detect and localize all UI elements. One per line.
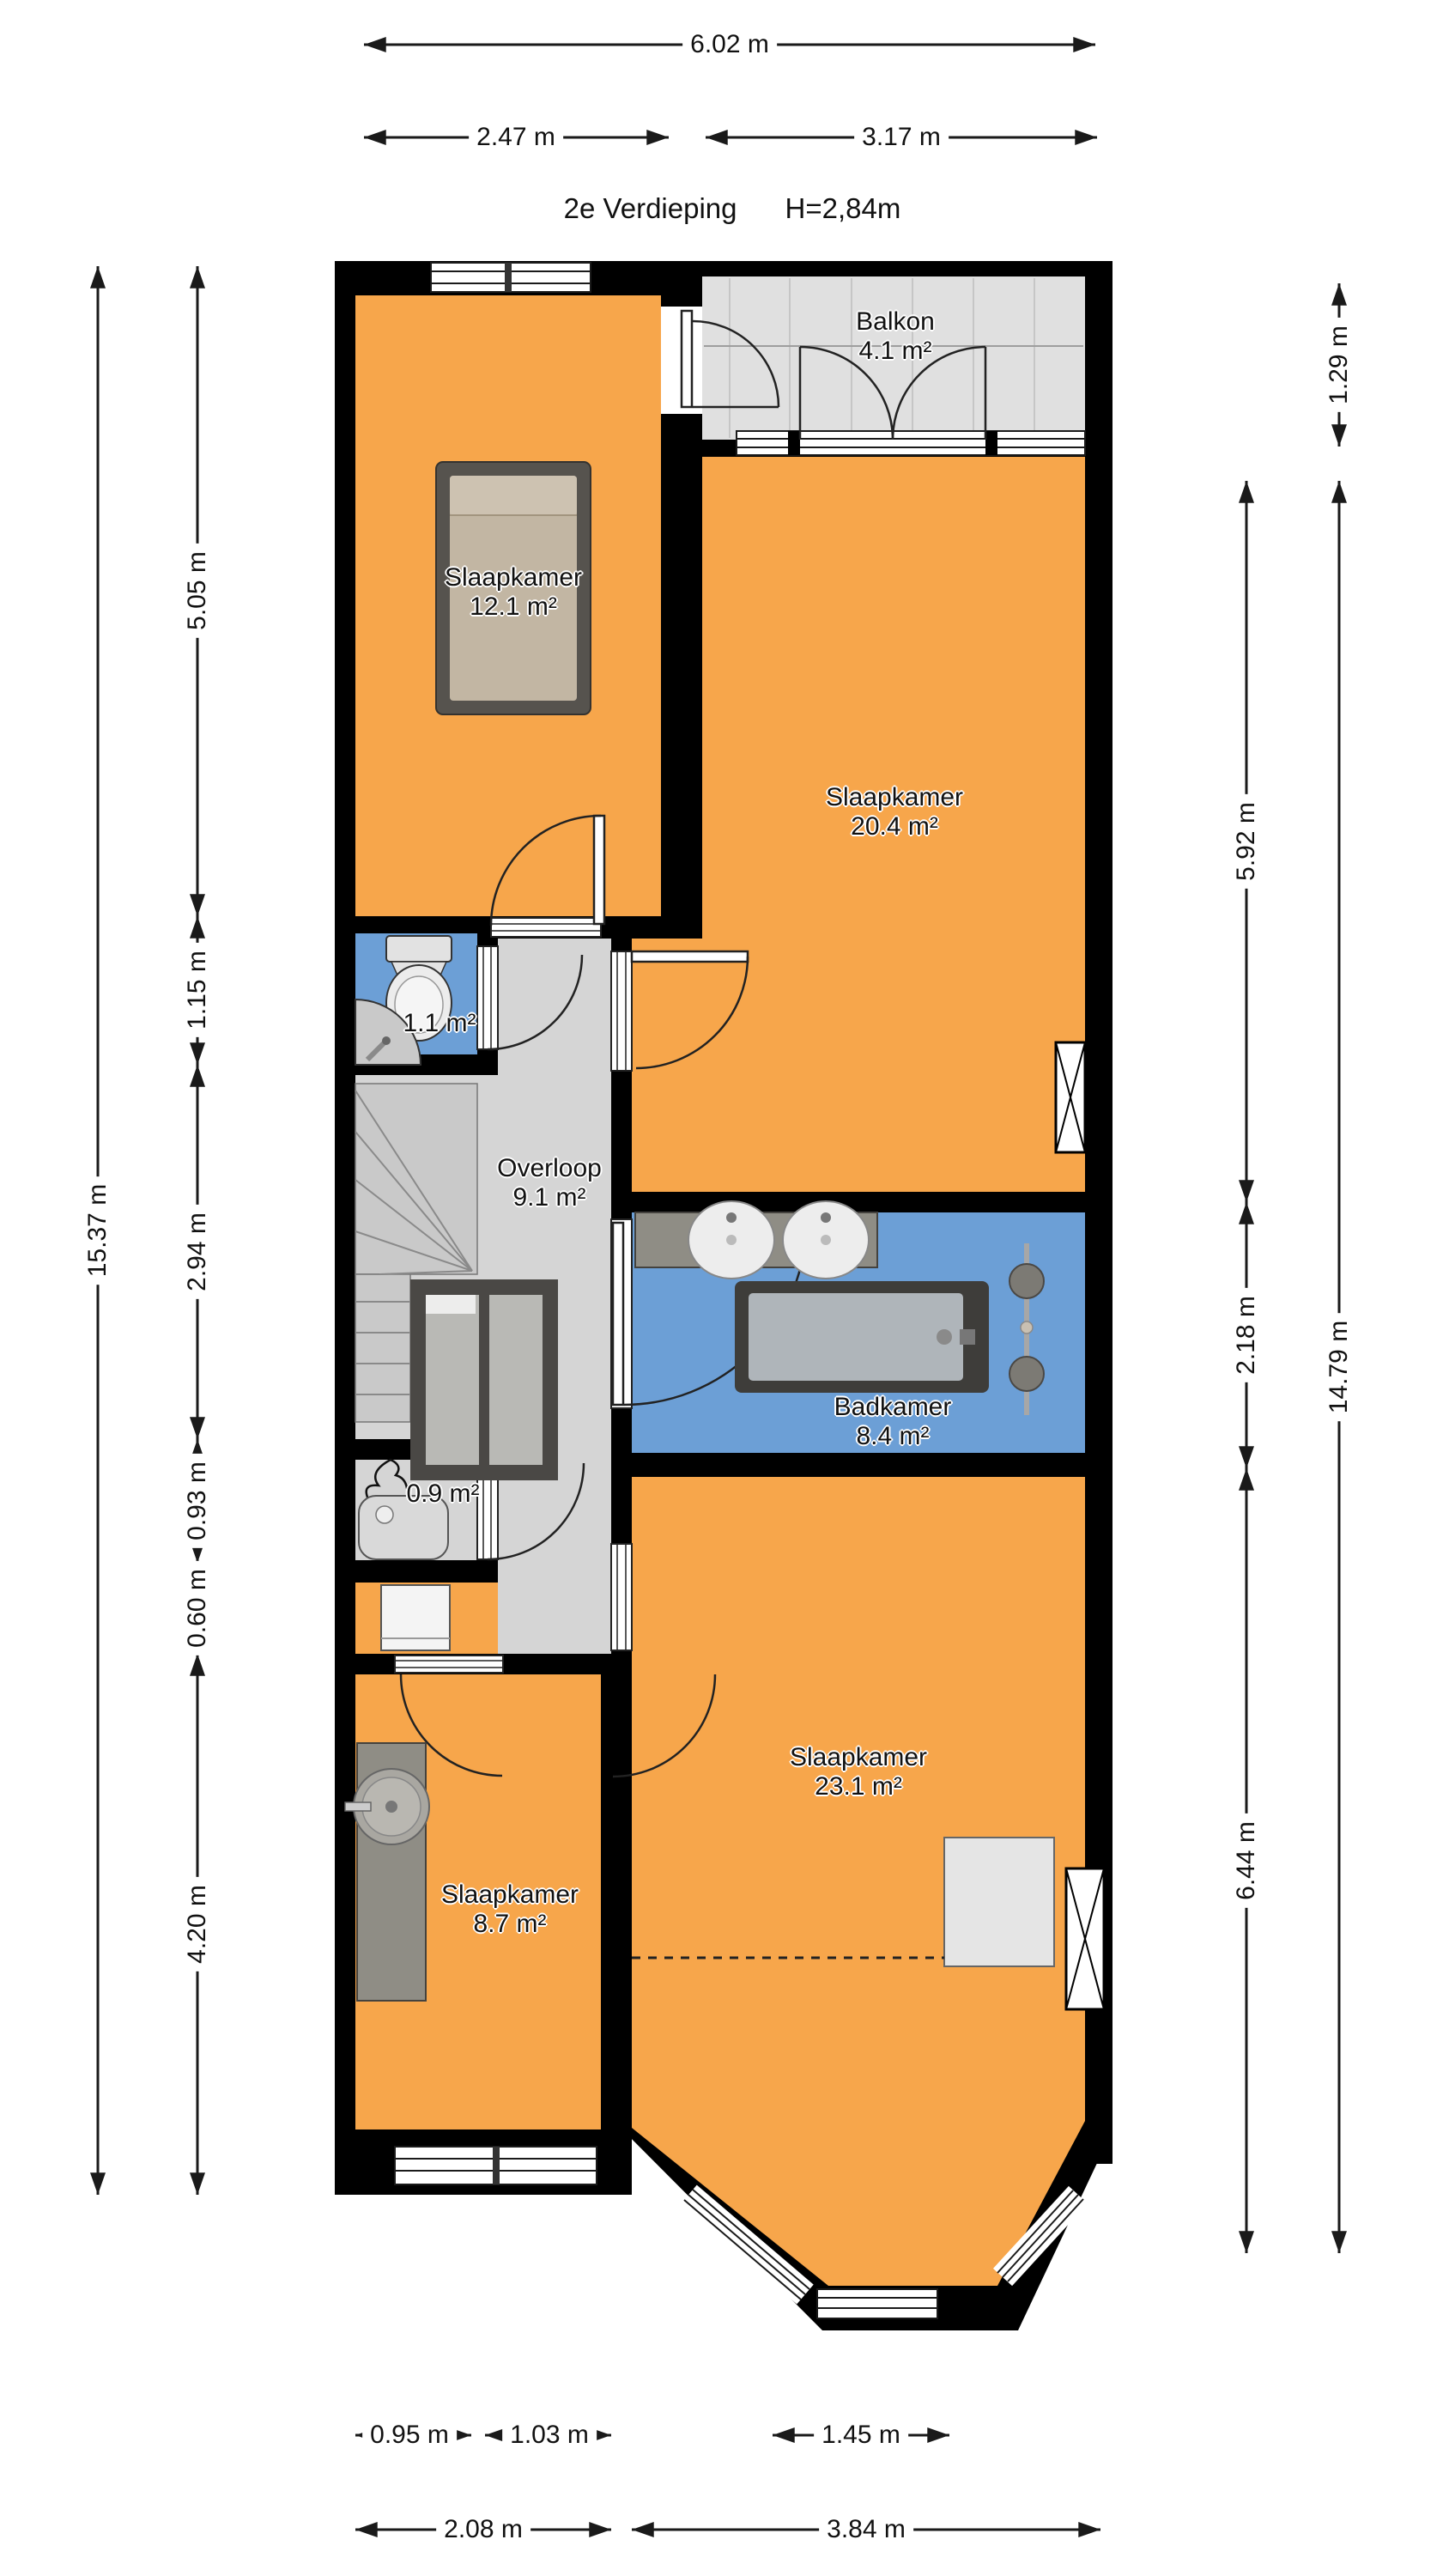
dim-right-3: 6.44 m (1232, 1814, 1261, 1908)
dim-bottom-1: 0.95 m (362, 2421, 457, 2450)
dim-top-left: 2.47 m (469, 123, 563, 152)
window-slaapkamer-klein-bottom (395, 2147, 597, 2184)
dim-left-3: 2.94 m (183, 1205, 212, 1299)
floorplan-page: 2e Verdieping H=2,84m 6.02 m 2.47 m 3.17… (0, 0, 1449, 2576)
room-label-badkamer: Badkamer 8.4 m² (834, 1393, 952, 1451)
room-label-slaapkamer-achter: Slaapkamer 23.1 m² (790, 1743, 927, 1801)
dim-right-balkon: 1.29 m (1325, 318, 1354, 412)
room-label-slaapkamer-klein: Slaapkamer 8.7 m² (441, 1880, 579, 1939)
room-label-slaapkamer-midden: Slaapkamer 20.4 m² (826, 783, 963, 841)
dim-left-4: 0.93 m (183, 1454, 212, 1548)
dim-bottom-total-left: 2.08 m (436, 2515, 530, 2544)
window-bay-bottom (817, 2289, 937, 2318)
dim-left-5: 0.60 m (183, 1561, 212, 1656)
room-label-balkon: Balkon 4.1 m² (856, 307, 935, 366)
dim-top-right: 3.17 m (854, 123, 949, 152)
dim-bottom-2: 1.03 m (502, 2421, 597, 2450)
bathtub (735, 1281, 989, 1393)
window-slaapkamer-voor-top (431, 263, 591, 292)
dim-left-1: 5.05 m (183, 544, 212, 638)
shaft-23 (1066, 1868, 1104, 2009)
room-label-toilet: 1.1 m² (403, 1009, 476, 1038)
bathroom-vanity (635, 1201, 877, 1279)
floor-name: 2e Verdieping (564, 192, 737, 225)
dim-top-total: 6.02 m (682, 30, 777, 59)
dim-left-6: 4.20 m (183, 1877, 212, 1971)
dim-bottom-total-right: 3.84 m (819, 2515, 913, 2544)
dim-left-total: 15.37 m (83, 1176, 112, 1285)
plan-title: 2e Verdieping H=2,84m (509, 192, 955, 225)
bedroom-sink-counter (345, 1743, 429, 2001)
washing-machine (381, 1585, 450, 1650)
room-label-cv-kast: 0.9 m² (406, 1479, 479, 1509)
dim-right-2: 2.18 m (1232, 1288, 1261, 1382)
window-band-balkon (737, 431, 1085, 455)
dim-right-total: 14.79 m (1325, 1313, 1354, 1421)
dim-left-2: 1.15 m (183, 943, 212, 1037)
closet (944, 1838, 1054, 1966)
room-label-overloop: Overloop 9.1 m² (497, 1154, 602, 1212)
stairwell-void (410, 1279, 558, 1480)
dim-bottom-3: 1.45 m (814, 2421, 908, 2450)
dim-right-1: 5.92 m (1232, 794, 1261, 889)
ceiling-height: H=2,84m (785, 192, 901, 225)
shaft-20 (1056, 1042, 1085, 1152)
room-label-slaapkamer-voor: Slaapkamer 12.1 m² (445, 563, 582, 622)
